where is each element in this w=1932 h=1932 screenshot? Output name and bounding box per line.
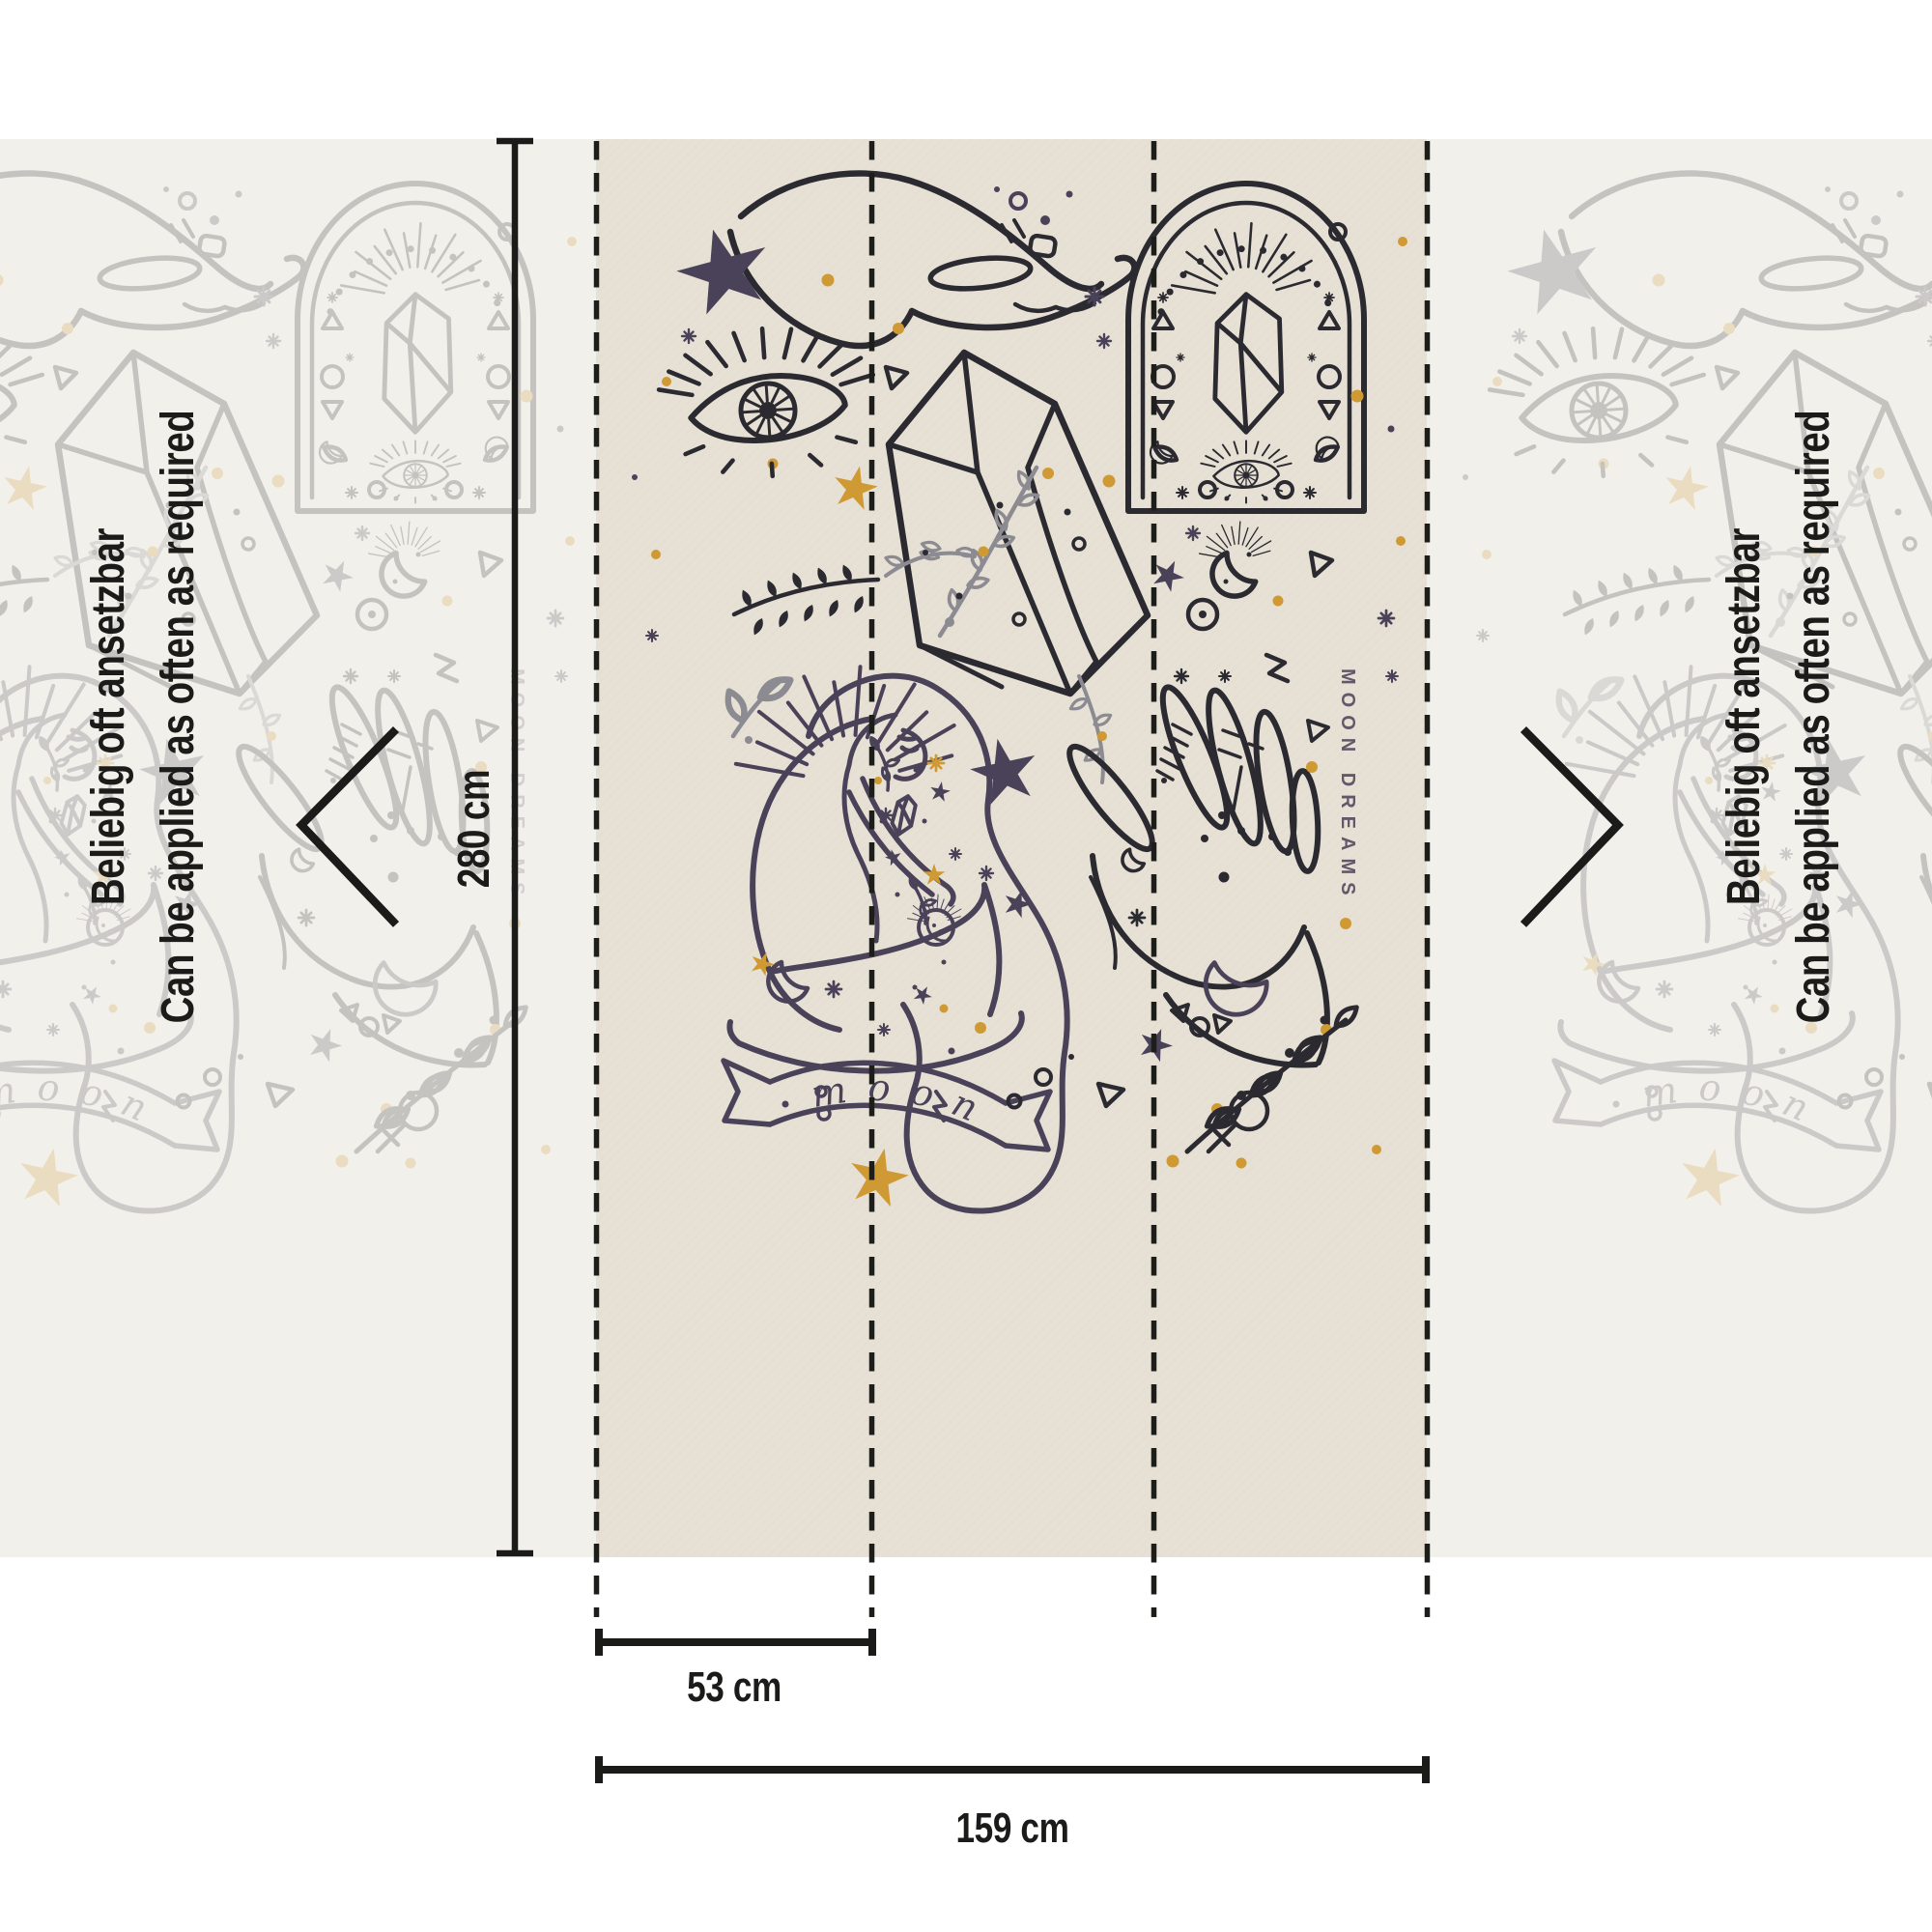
- repeat-note-right-de: Beliebig oft ansetzbar: [1721, 528, 1768, 905]
- product-dimension-diagram: moon: [0, 0, 1932, 1932]
- strip-width-bracket: [599, 1629, 872, 1656]
- repeat-note-left-de: Beliebig oft ansetzbar: [86, 528, 132, 905]
- strip-width-label: 53 cm: [687, 1666, 781, 1709]
- total-width-bracket: [599, 1756, 1426, 1783]
- ghost-repeat-right-background: [1427, 139, 1932, 1557]
- repeat-note-right-en: Can be applied as often as required: [1791, 411, 1837, 1024]
- wallpaper-diagram-graphic: moon: [0, 0, 1932, 1932]
- height-label: 280 cm: [451, 770, 496, 888]
- wallpaper-center-mural: [596, 139, 1427, 1557]
- repeat-note-left-en: Can be applied as often as required: [156, 411, 202, 1024]
- total-width-label: 159 cm: [956, 1807, 1069, 1850]
